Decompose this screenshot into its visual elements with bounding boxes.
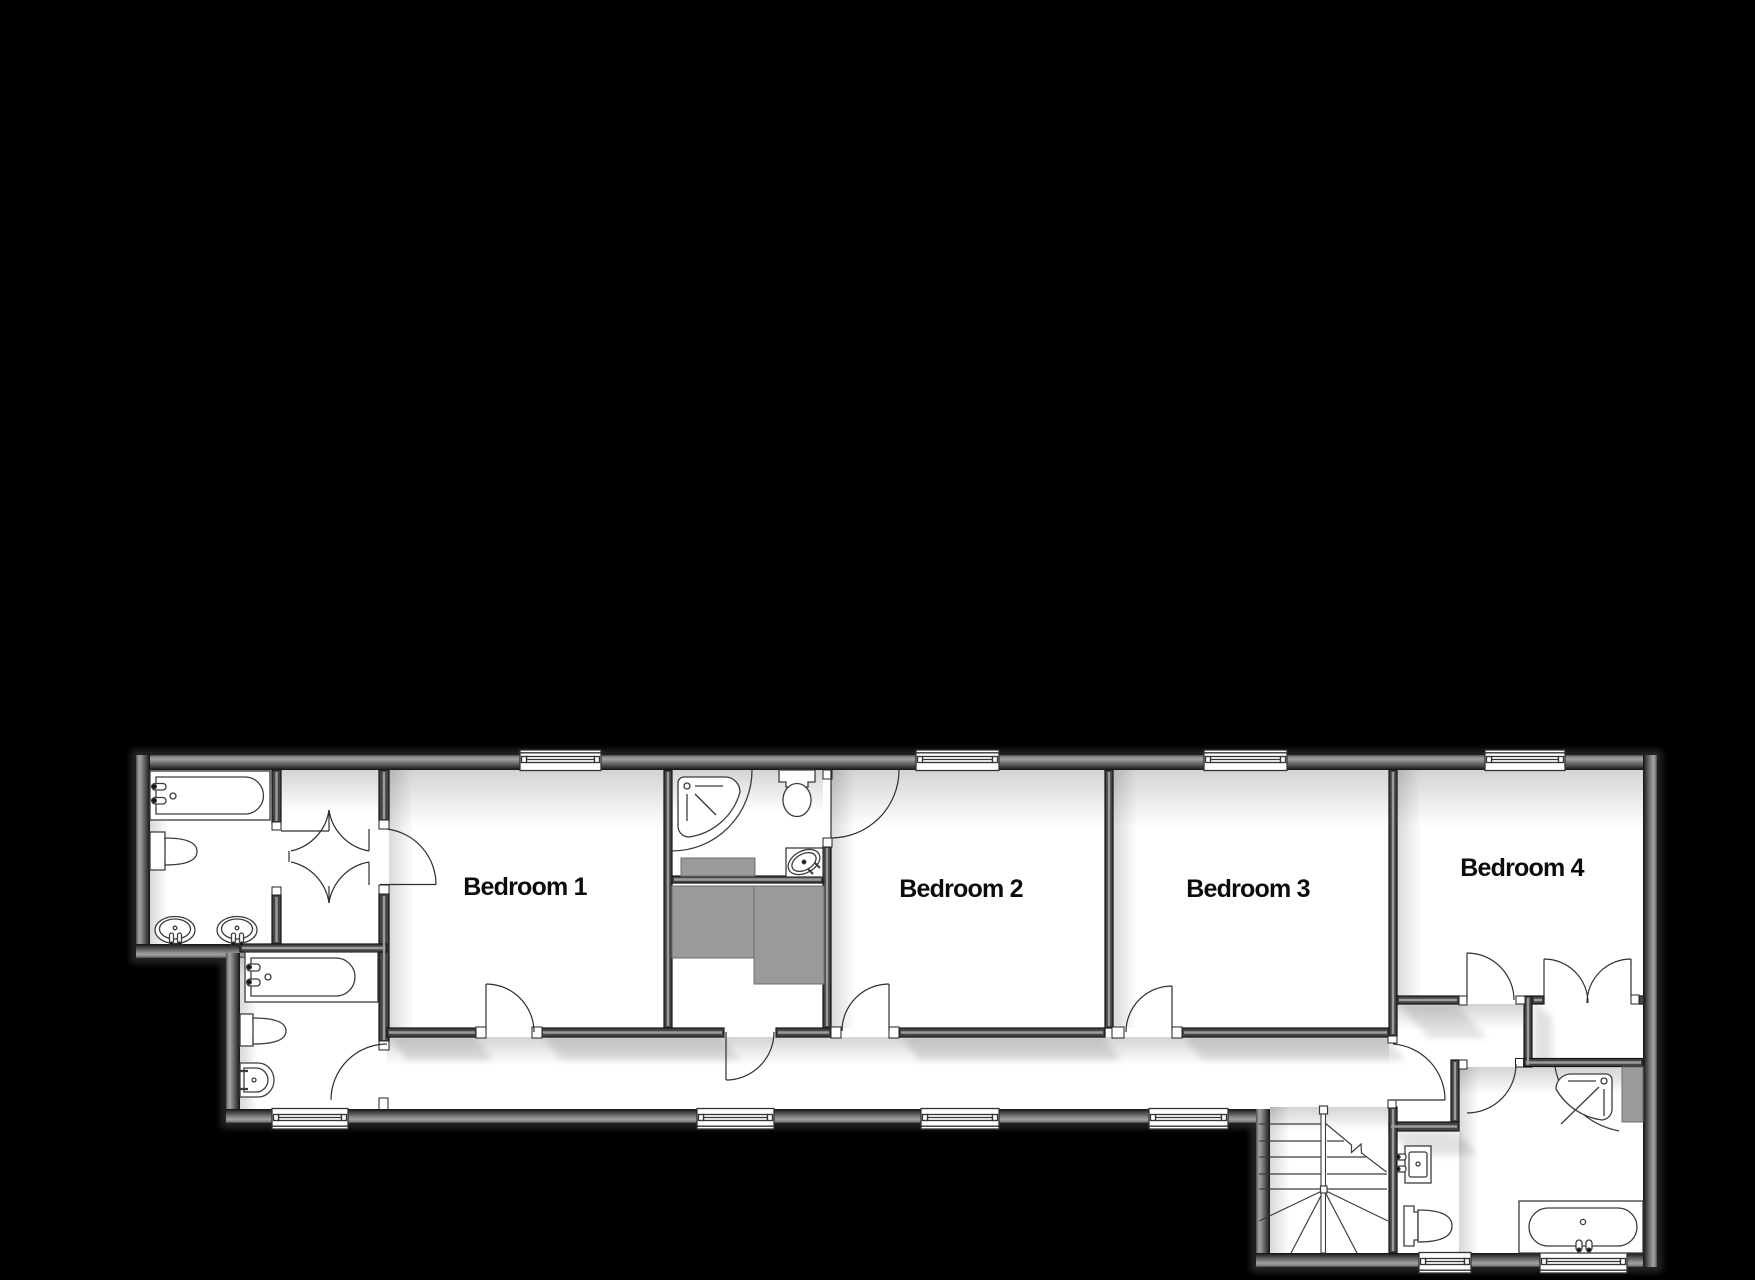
svg-text:Bedroom 4: Bedroom 4 <box>1460 854 1584 882</box>
svg-text:Bedroom 1: Bedroom 1 <box>463 873 587 901</box>
svg-text:Bedroom 2: Bedroom 2 <box>899 875 1022 903</box>
svg-text:Bedroom 3: Bedroom 3 <box>1186 875 1309 903</box>
